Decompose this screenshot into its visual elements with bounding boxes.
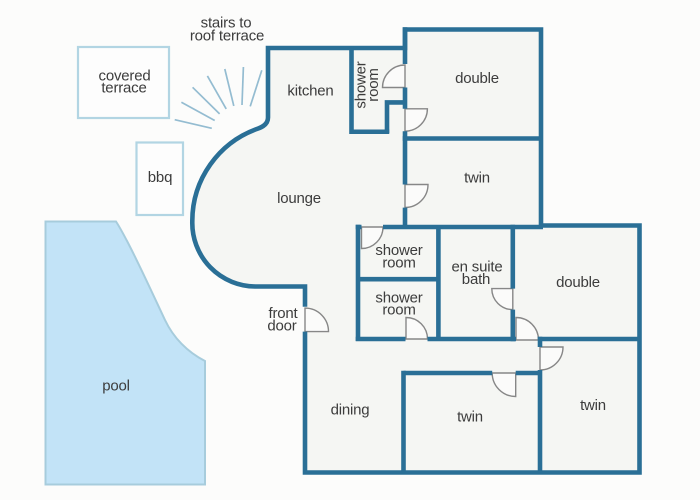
svg-text:kitchen: kitchen — [287, 83, 333, 100]
svg-text:twin: twin — [580, 397, 606, 414]
svg-text:bath: bath — [462, 271, 490, 288]
svg-text:door: door — [267, 318, 296, 335]
svg-text:room: room — [365, 68, 382, 101]
svg-text:dining: dining — [331, 401, 370, 418]
svg-text:room: room — [382, 302, 415, 319]
svg-text:twin: twin — [457, 409, 483, 426]
svg-text:lounge: lounge — [277, 190, 321, 207]
svg-text:bbq: bbq — [148, 169, 172, 186]
svg-text:twin: twin — [464, 170, 490, 187]
svg-text:double: double — [556, 274, 600, 291]
svg-text:roof terrace: roof terrace — [190, 28, 264, 45]
svg-text:double: double — [455, 70, 499, 87]
svg-text:room: room — [382, 254, 415, 271]
svg-text:pool: pool — [102, 377, 130, 394]
svg-text:terrace: terrace — [101, 79, 146, 96]
